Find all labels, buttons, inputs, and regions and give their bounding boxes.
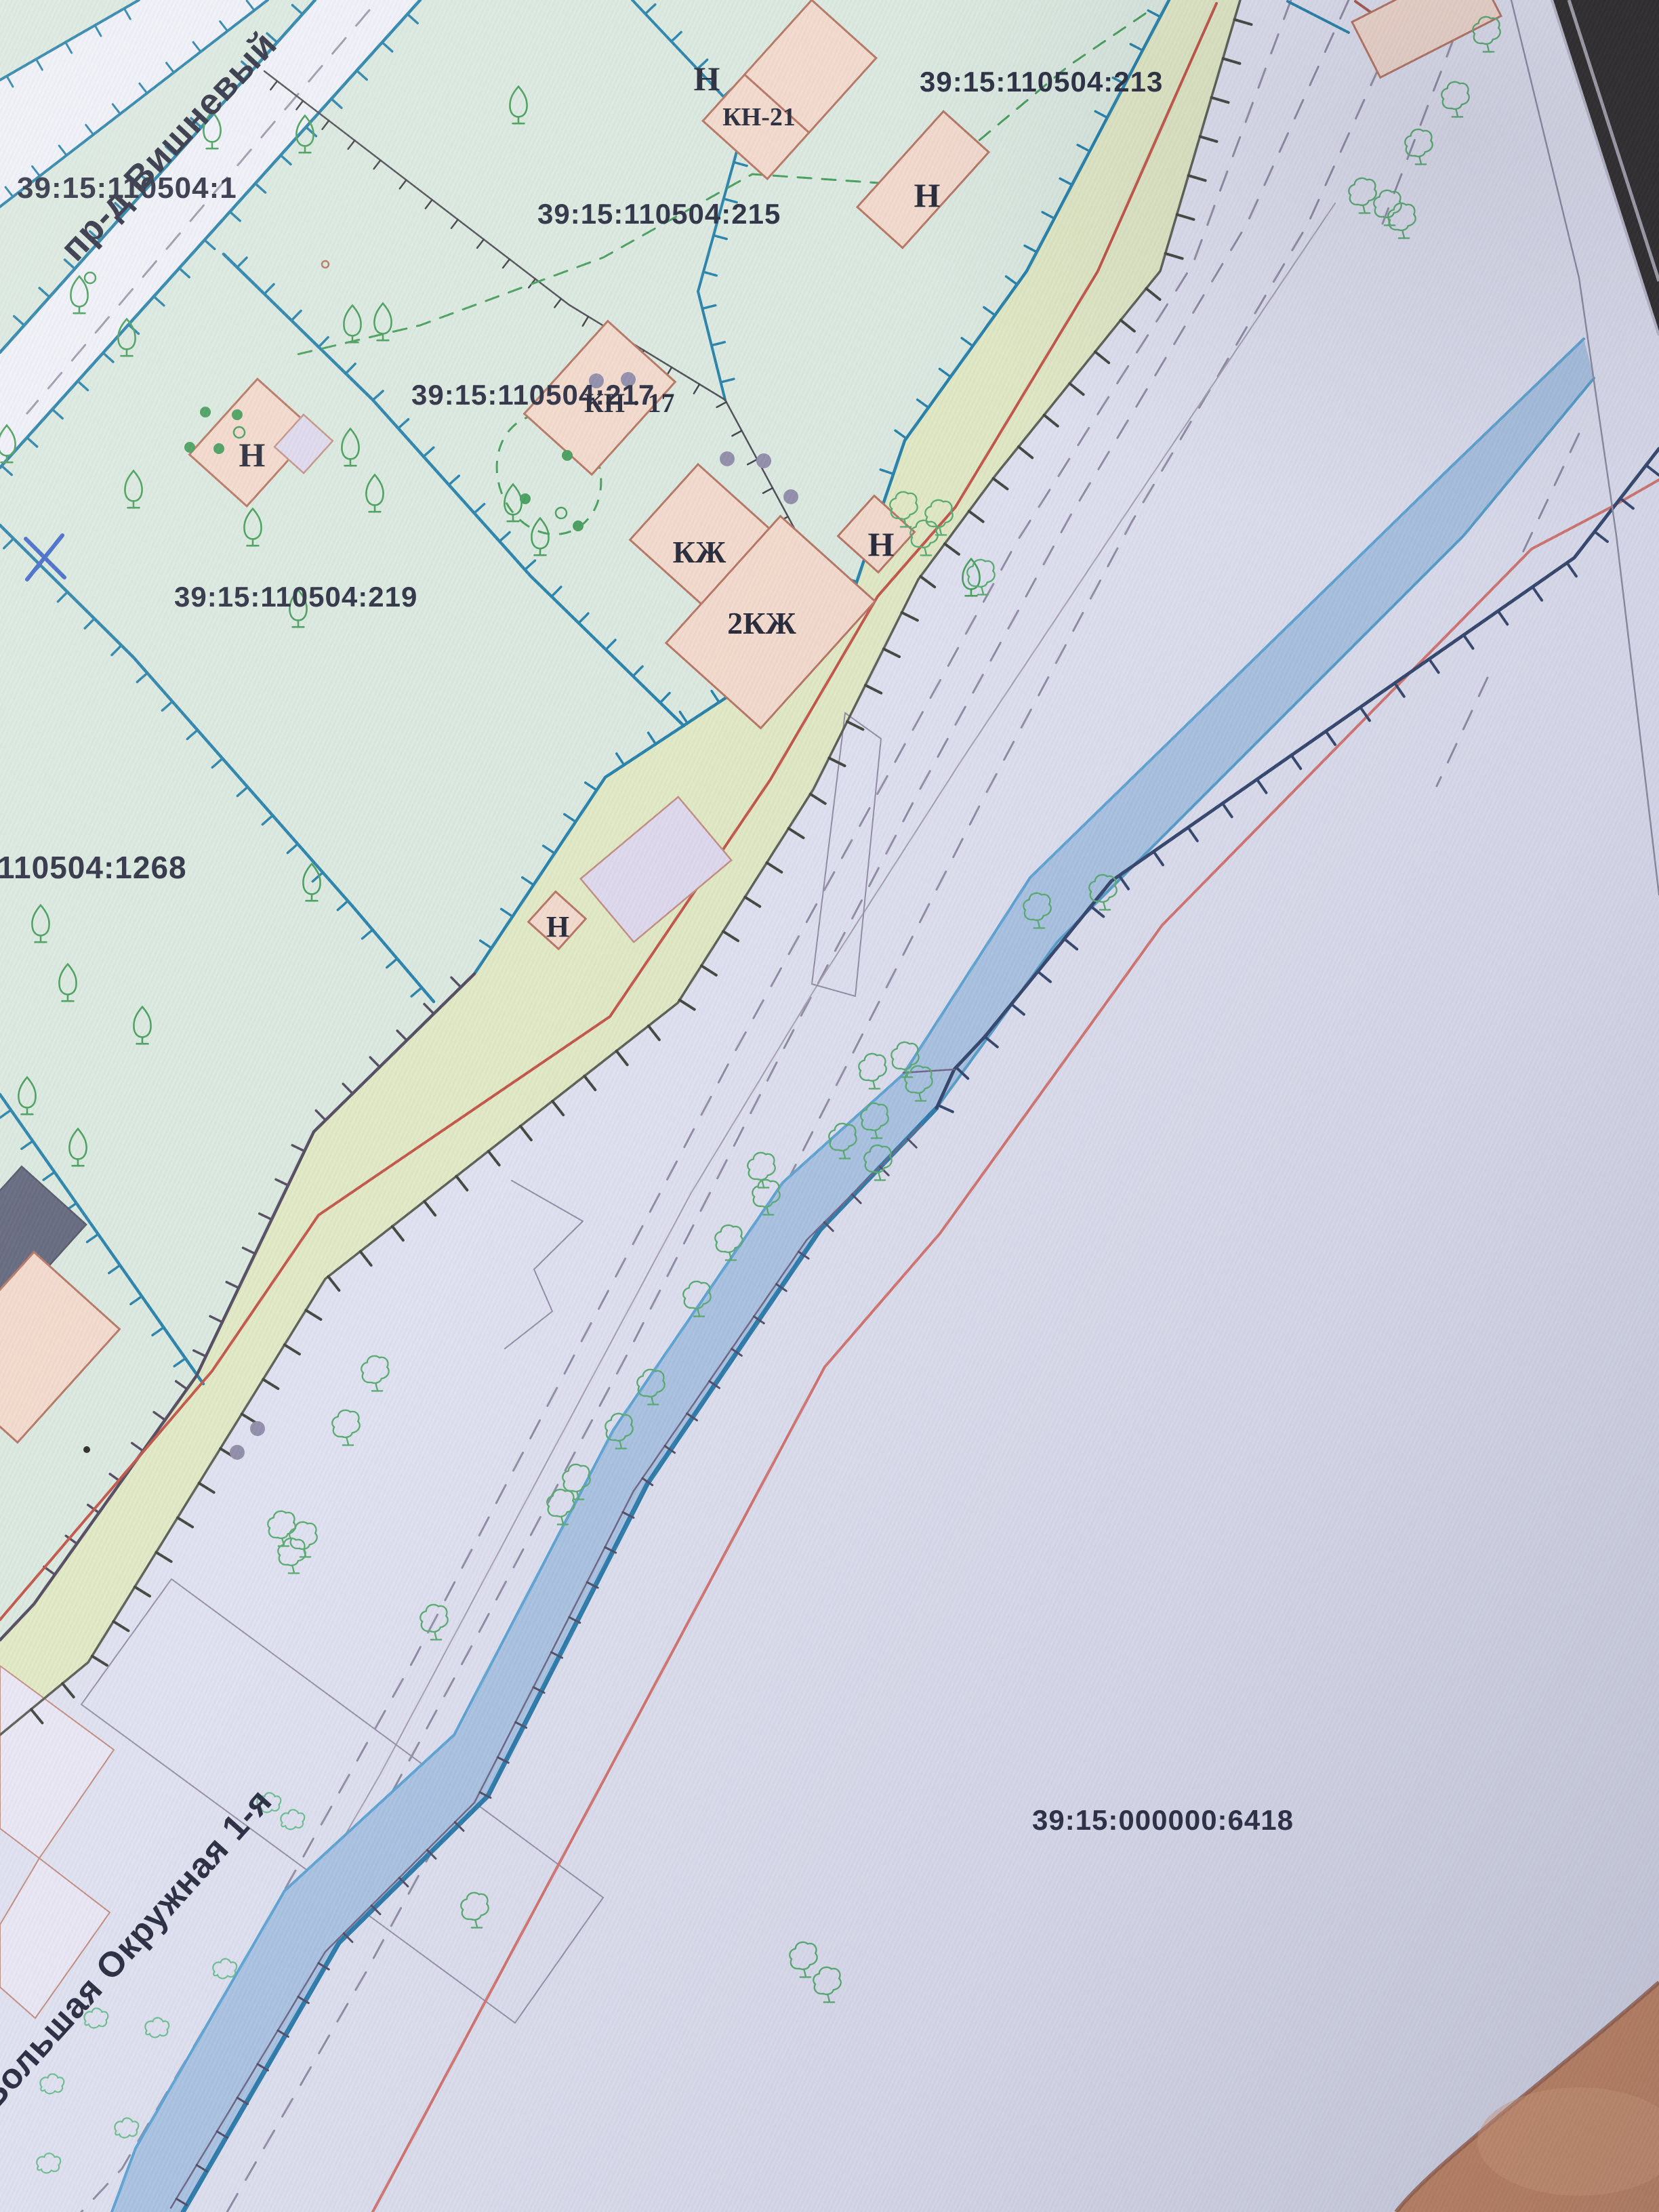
photo-of-cadastral-map: 39:15:110504:1 39:15:110504:215 39:15:11… — [0, 0, 1659, 2212]
tree-point-dot — [573, 520, 583, 531]
building-label-kn17: КН · 17 — [584, 388, 674, 418]
building-label-n-strip: Н — [868, 525, 895, 563]
land-areas-layer — [0, 0, 1659, 2212]
tree-point-dot — [562, 450, 573, 461]
tree-point-dot — [184, 442, 195, 453]
tree-point-dot — [232, 409, 243, 420]
utility-gray-dot — [756, 453, 771, 468]
parcel-label-000000-6418: 39:15:000000:6418 — [1032, 1804, 1294, 1836]
tree-point-dot — [520, 493, 531, 504]
building-label-n-1: Н — [694, 60, 720, 98]
parcel-label-110504-213: 39:15:110504:213 — [920, 66, 1163, 98]
parcel-label-110504-219: 39:15:110504:219 — [174, 581, 417, 613]
tree-point-dot — [213, 443, 224, 454]
utility-gray-dot — [783, 489, 798, 504]
building-label-2kzh: 2КЖ — [727, 606, 796, 640]
building-label-kn21: КН-21 — [722, 103, 796, 131]
parcel-label-110504-215: 39:15:110504:215 — [537, 198, 781, 230]
utility-gray-dot — [250, 1421, 265, 1436]
building-label-kzh: КЖ — [673, 535, 726, 569]
utility-gray-dot — [720, 451, 735, 466]
cadastral-map-canvas: 39:15:110504:1 39:15:110504:215 39:15:11… — [0, 0, 1659, 2212]
tree-point-dot — [200, 407, 211, 417]
utility-gray-dot — [230, 1445, 245, 1460]
building-label-n-house: Н — [239, 436, 266, 474]
parcel-label-110504-1268: 110504:1268 — [0, 850, 187, 885]
building-label-n-small: Н — [546, 910, 569, 943]
black-dot — [83, 1446, 90, 1453]
building-label-n-2: Н — [914, 176, 941, 214]
